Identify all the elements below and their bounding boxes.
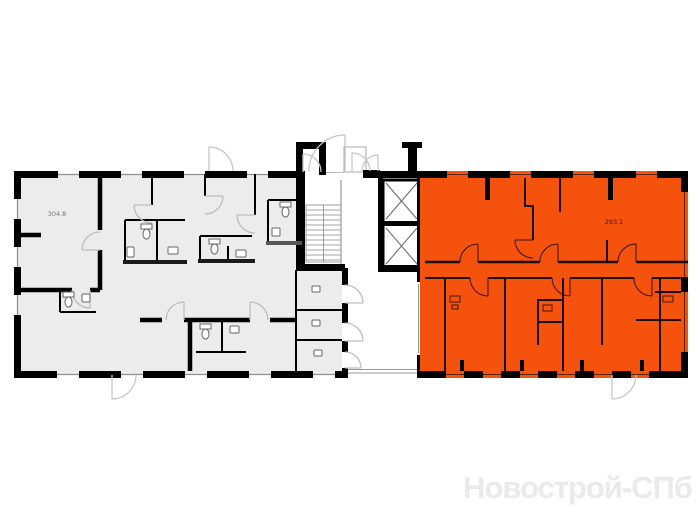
door-arc xyxy=(345,352,361,368)
door-arc xyxy=(345,323,363,341)
corridor-windows xyxy=(348,370,417,374)
door-arc xyxy=(303,154,321,172)
sink-icon xyxy=(230,326,239,333)
sink-icon xyxy=(272,228,280,236)
sink-icon xyxy=(168,247,178,254)
left-unit[interactable]: 304.8 xyxy=(14,147,348,399)
sink-icon xyxy=(314,350,322,356)
door-arc xyxy=(209,147,233,171)
sink-icon xyxy=(312,286,320,292)
door-arc xyxy=(309,135,345,171)
right-unit[interactable]: 293.1 xyxy=(420,171,688,399)
floor-plan-page: 304.8 xyxy=(0,0,700,525)
door-arc xyxy=(345,285,363,303)
sink-icon xyxy=(236,250,246,257)
right-unit-floor[interactable] xyxy=(420,171,688,378)
door-arc xyxy=(112,375,136,399)
right-unit-area-label: 293.1 xyxy=(605,218,624,226)
toilet-icon xyxy=(312,320,320,326)
door-arc xyxy=(612,375,636,399)
left-unit-area-label: 304.8 xyxy=(48,210,67,218)
core-corridor xyxy=(342,268,425,378)
left-unit-floor[interactable] xyxy=(17,174,342,374)
floor-plan-canvas: 304.8 xyxy=(0,0,700,525)
sink-icon xyxy=(127,247,134,257)
entrance-door-arcs xyxy=(303,135,378,172)
watermark: Новострой-СПб xyxy=(463,470,692,505)
sink-icon xyxy=(82,294,90,302)
corridor-door-arcs xyxy=(345,285,363,368)
